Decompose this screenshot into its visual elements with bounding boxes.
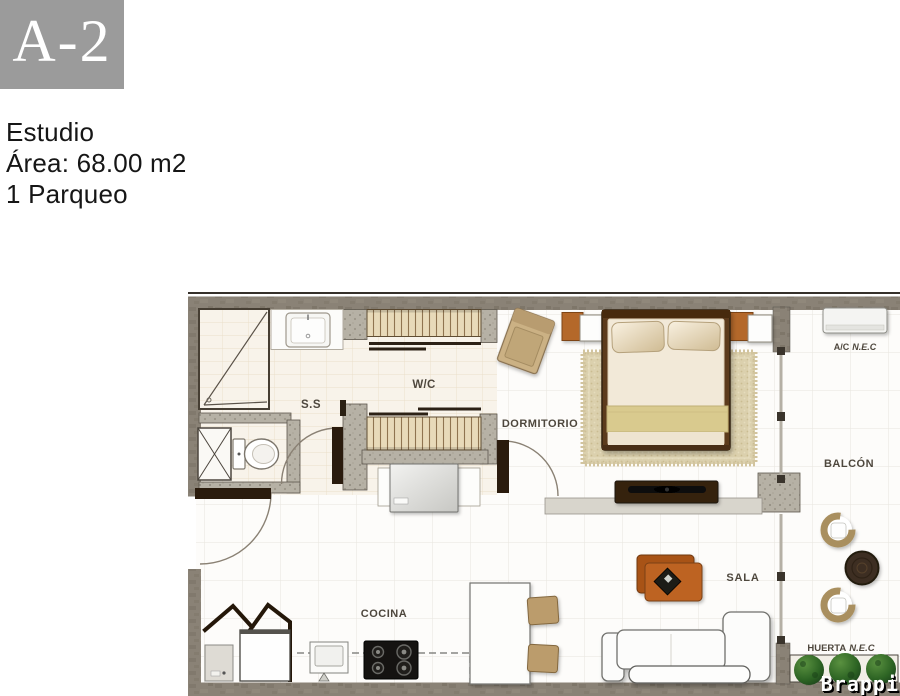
unit-badge: A-2 [0,0,124,89]
pillow-left [611,321,664,353]
toilet-nook-top-wall [199,413,291,423]
washer [240,630,290,681]
floor-plan: S.S W/C DORMITORIO BALCÓN SALA COCINA A/… [188,292,900,696]
nightstand-left [562,313,602,342]
stove [364,641,418,679]
bed [602,310,730,450]
label-bathroom: S.S [301,399,321,411]
toilet [233,439,279,469]
shower [199,309,269,409]
label-kitchen: COCINA [361,608,407,620]
nightstand-right [730,313,772,343]
unit-area: Área: 68.00 m2 [6,148,187,179]
sofa-seat-cushion [629,666,750,683]
balcony-partition-bottom [776,643,790,684]
unit-parking: 1 Parqueo [6,179,187,210]
unit-details: Estudio Área: 68.00 m2 1 Parqueo [6,117,187,210]
label-ac-prefix: A/C [834,342,850,352]
bath-door-post [340,400,346,416]
ac-unit [823,308,887,333]
label-garden-suffix: N.E.C [849,643,874,654]
bath-vanity [271,310,343,350]
balcony-partition-top [773,307,790,352]
closet-base-wall [362,450,488,464]
coffee-table [637,555,702,601]
balcony-table [846,552,879,585]
top-wall [188,297,900,311]
vent-shaft [198,428,231,480]
balcony-chair-top [824,516,852,544]
label-balcony: BALCÓN [824,457,874,470]
cabinet-right-of-fridge [458,468,480,506]
label-bedroom: DORMITORIO [502,418,578,430]
label-ac: A/CN.E.C [834,342,877,352]
pillow-right [668,321,721,351]
closet-column-upper-right [481,310,497,343]
unit-code: A-2 [12,8,111,74]
refrigerator [390,464,458,512]
watermark: Brappi [821,672,899,696]
tv-console [615,481,718,503]
label-living: SALA [726,572,759,584]
label-closet: W/C [412,379,435,391]
label-garden: HUERTAN.E.C [807,643,874,654]
laundry-tub [205,645,233,681]
floor-plan-drawing: S.S W/C DORMITORIO BALCÓN SALA COCINA A/… [188,292,900,696]
bush [794,655,824,685]
cabinet-left-of-fridge [378,468,390,506]
kitchen-island [470,583,530,684]
label-ac-suffix: N.E.C [852,342,877,352]
bottom-wall [188,683,900,696]
closet-column-lower-left [343,404,367,490]
left-wall-lower [188,569,201,696]
bed-blanket [607,406,728,432]
label-garden-prefix: HUERTA [807,643,846,654]
balcony-chair-bottom [824,591,852,619]
closet-upper [367,310,481,350]
unit-type: Estudio [6,117,187,148]
closet-column-upper-left [343,310,367,340]
plan-top-line [188,292,900,294]
